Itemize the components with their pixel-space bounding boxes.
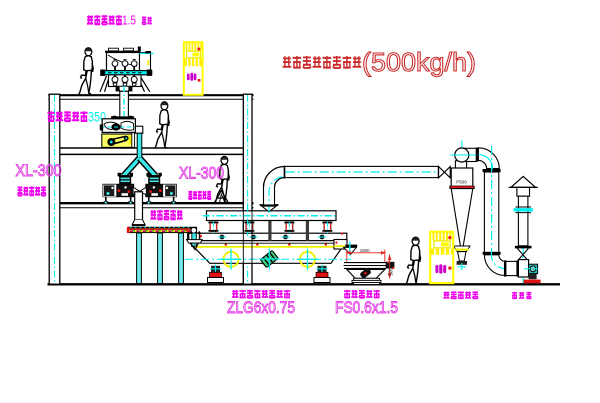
svg-text:(500kg/h): (500kg/h) xyxy=(362,47,476,77)
svg-text:500: 500 xyxy=(389,267,395,276)
svg-text:P500: P500 xyxy=(456,180,467,185)
svg-text:FS0.6x1.5: FS0.6x1.5 xyxy=(335,299,398,317)
svg-text:ZLG6x0.75: ZLG6x0.75 xyxy=(227,299,295,317)
svg-text:XL-300: XL-300 xyxy=(16,161,62,180)
svg-text:XL-300: XL-300 xyxy=(179,164,224,183)
svg-text:1.5: 1.5 xyxy=(122,13,136,28)
svg-text:1500: 1500 xyxy=(360,248,370,253)
